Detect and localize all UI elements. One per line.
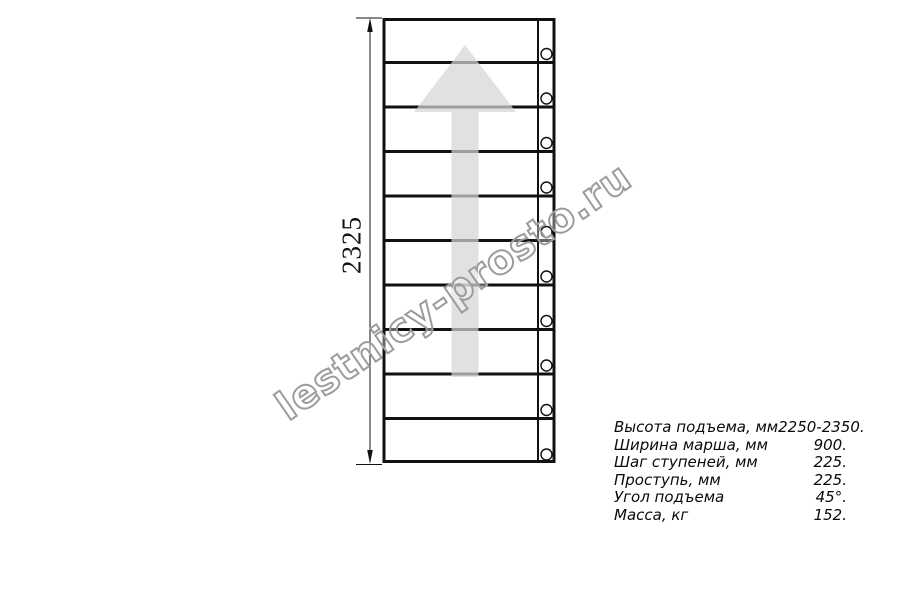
mount-hole-icon bbox=[541, 49, 552, 60]
spec-label: Масса, кг bbox=[614, 507, 688, 525]
spec-value: 225. bbox=[814, 454, 847, 472]
mount-hole-icon bbox=[541, 449, 552, 460]
dimension-value-label: 2325 bbox=[337, 216, 368, 274]
mount-hole-icon bbox=[541, 93, 552, 104]
spec-label: Угол подъема bbox=[614, 489, 724, 507]
specs-table: Высота подъема, мм2250-2350.Ширина марша… bbox=[614, 419, 847, 525]
spec-row: Ширина марша, мм900. bbox=[614, 437, 847, 455]
mount-hole-icon bbox=[541, 182, 552, 193]
mount-hole-icon bbox=[541, 405, 552, 416]
technical-drawing-canvas: lestnicy-prosto.ru 2325 Высота подъема, … bbox=[0, 0, 900, 600]
spec-row: Угол подъема45°. bbox=[614, 489, 847, 507]
spec-value: 45°. bbox=[816, 489, 847, 507]
spec-value: 225. bbox=[814, 472, 847, 490]
spec-value: 2250-2350. bbox=[778, 419, 865, 437]
spec-row: Масса, кг152. bbox=[614, 507, 847, 525]
mount-hole-icon bbox=[541, 316, 552, 327]
spec-row: Высота подъема, мм2250-2350. bbox=[614, 419, 847, 437]
dimension-arrow-down-icon bbox=[367, 450, 373, 464]
spec-label: Высота подъема, мм bbox=[614, 419, 778, 437]
mount-hole-icon bbox=[541, 271, 552, 282]
spec-label: Ширина марша, мм bbox=[614, 437, 768, 455]
dimension-arrow-up-icon bbox=[367, 18, 373, 32]
spec-label: Шаг ступеней, мм bbox=[614, 454, 758, 472]
spec-value: 900. bbox=[814, 437, 847, 455]
spec-value: 152. bbox=[814, 507, 847, 525]
spec-label: Проступь, мм bbox=[614, 472, 721, 490]
spec-row: Шаг ступеней, мм225. bbox=[614, 454, 847, 472]
mount-hole-icon bbox=[541, 138, 552, 149]
spec-row: Проступь, мм225. bbox=[614, 472, 847, 490]
mount-hole-icon bbox=[541, 360, 552, 371]
